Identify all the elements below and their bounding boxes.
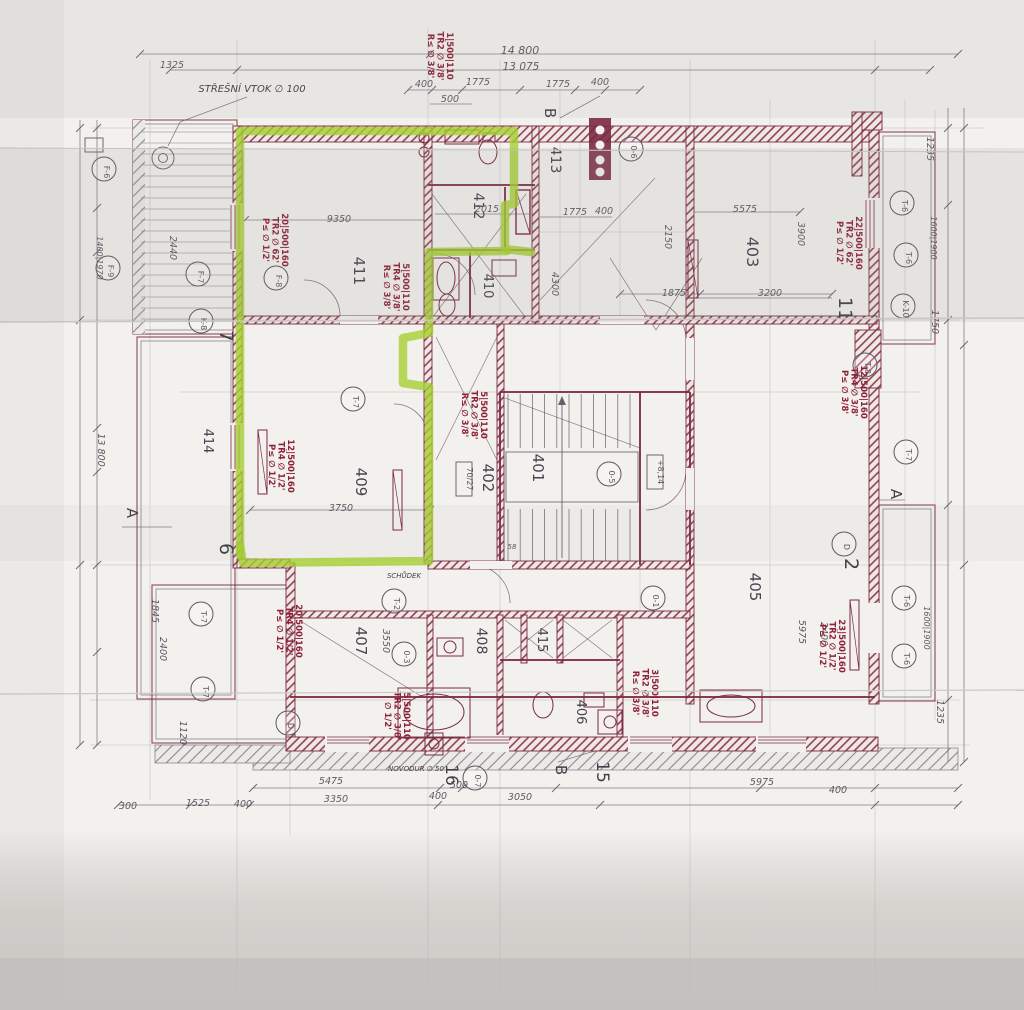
marker-label-c10: T-7 <box>201 685 210 698</box>
marker-label-c7: 0-5 <box>607 470 616 483</box>
room-label-414: 414 <box>200 429 215 454</box>
dimension-d42: 1235 <box>934 700 945 724</box>
dimension-d30: 1525 <box>186 798 210 809</box>
room-label-406: 406 <box>573 700 588 725</box>
dimension-d35: 1120 <box>177 721 188 745</box>
room-label-405: 405 <box>746 573 764 602</box>
marker-label-c12: 0-1 <box>651 594 660 607</box>
dimension-d23: 5475 <box>319 776 343 787</box>
marker-label-c15: 0-7 <box>473 774 482 787</box>
marker-label-c22: T-6 <box>902 652 911 665</box>
dimension-d41: 1600|1900 <box>922 606 931 649</box>
rebar-annotation-n9: 23|500|160TŘ2 ∅ 1/2'P≤ ∅ 1/2' <box>817 619 846 673</box>
elevation-tag-b2: 70/27 <box>465 467 474 490</box>
rebar-annotation-n6: 20|500|160TŘ4 ∅ 1/2'P≤ ∅ 1/2' <box>274 604 303 658</box>
marker-label-c21: T-6 <box>902 594 911 607</box>
rebar-annotation-n3: 5|500|110TŘ2 ∅ 3/8'R≤ ∅ 3/8' <box>459 391 488 440</box>
axis-label-aBB: B <box>552 765 570 775</box>
dimension-d31: 400 <box>234 799 252 810</box>
note-step: SCHŮDEK <box>387 571 423 580</box>
room-label-407: 407 <box>352 627 370 656</box>
rebar-annotation-n5: 12|500|160TŘ4 ∅ 3/8'P≤ ∅ 3/8' <box>839 365 868 419</box>
photo-shading <box>0 0 1024 1010</box>
marker-label-c11: D <box>286 723 295 729</box>
axis-label-a15: 15 <box>592 761 612 783</box>
rebar-annotation-n11: 12|500|160TŘ4 ∅ 1/2'P≤ ∅ 1/2' <box>266 439 295 493</box>
dimension-d32: 300 <box>119 801 137 812</box>
marker-label-c13: T-2 <box>392 597 401 610</box>
dimension-d36: 1845 <box>149 599 160 623</box>
marker-label-c8: T-7 <box>351 395 360 408</box>
room-label-409: 409 <box>352 468 370 497</box>
dimension-d27: 3050 <box>508 792 532 803</box>
room-label-415: 415 <box>534 628 549 653</box>
axis-label-aAR: A <box>887 489 905 500</box>
elevation-tag-b1: +8,14 <box>656 460 665 485</box>
dimension-d20: 3550 <box>380 629 391 653</box>
note-pipe: NOVODUR ∅ 50 <box>388 765 444 773</box>
axis-label-a7: 7 <box>215 330 237 342</box>
dimension-d28: 400 <box>829 785 847 796</box>
dimension-d26: 500 <box>450 780 468 791</box>
room-label-402: 402 <box>479 464 497 493</box>
rebar-annotation-n8: 3|500|110TŘ2 ∅ 3/8'R≤ ∅ 3/8' <box>630 669 659 718</box>
room-label-408: 408 <box>473 628 489 655</box>
floorplan-drawing: 4014024034054064074084094104114124134144… <box>0 0 1024 1010</box>
dimension-d43: 5975 <box>796 620 807 644</box>
dimension-d34: 2400 <box>157 637 168 661</box>
floorplan-photo: 4014024034054064074084094104114124134144… <box>0 0 1024 1010</box>
dimension-d25: 400 <box>429 791 447 802</box>
dimension-d33: 13 800 <box>95 433 106 466</box>
marker-label-c9: T-7 <box>199 610 208 623</box>
dimension-d29: 5975 <box>750 777 774 788</box>
marker-label-c14: 0-3 <box>402 650 411 663</box>
dimension-d24: 3350 <box>324 794 348 805</box>
marker-label-c20: T-7 <box>904 448 913 461</box>
room-label-401: 401 <box>529 454 547 483</box>
